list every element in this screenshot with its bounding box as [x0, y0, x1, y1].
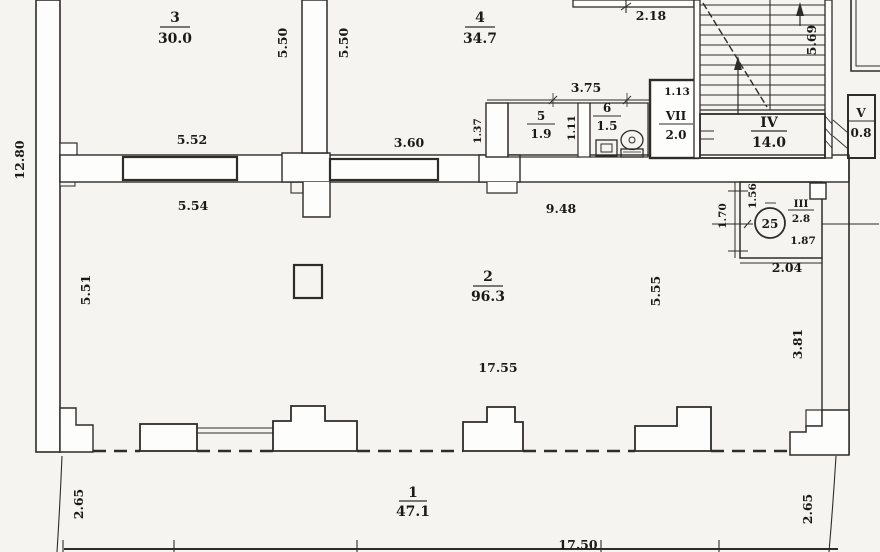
room-1-area: 47.1	[396, 504, 430, 520]
dim-1-11: 1.11	[566, 115, 578, 141]
dim-5-54: 5.54	[178, 198, 209, 213]
northeast-wall	[851, 0, 880, 71]
dim-5-50-b: 5.50	[336, 27, 351, 58]
door-jamb	[486, 103, 508, 157]
top-wall-segment	[573, 0, 694, 7]
pillar-1	[140, 424, 197, 451]
dim-1-13: 1.13	[664, 86, 690, 98]
room-3-area: 30.0	[158, 31, 192, 47]
floor-plan-canvas: 3 30.0 4 34.7 5 1.9 6 1.5 VII 2.0 IV 14.…	[0, 0, 880, 552]
dim-5-69: 5.69	[804, 25, 819, 55]
pillar-4	[635, 407, 711, 451]
room-2-area: 96.3	[471, 289, 505, 305]
dim-17-55: 17.55	[478, 360, 517, 375]
pier-below-junction-b	[487, 182, 517, 193]
room-iii-area: 2.8	[792, 213, 810, 225]
dim-5-55: 5.55	[648, 276, 663, 306]
room-2-number: 2	[483, 269, 493, 285]
tambour-pier	[810, 183, 826, 199]
pillar-3	[463, 407, 523, 451]
dim-17-50: 17.50	[558, 537, 597, 552]
south-colonnade	[57, 406, 838, 552]
room2-column	[294, 265, 322, 298]
dim-2-04: 2.04	[772, 260, 803, 275]
east-wall-notch	[806, 410, 822, 426]
dim-1-56: 1.56	[747, 183, 759, 209]
room-3-number: 3	[170, 10, 180, 26]
window-1	[123, 157, 237, 180]
dim-5-51: 5.51	[78, 275, 93, 305]
room-iii-number: III	[794, 198, 809, 210]
dim-5-50-a: 5.50	[275, 27, 290, 58]
window-2	[330, 159, 438, 180]
dim-3-60: 3.60	[394, 135, 425, 150]
northeast-wall-inner	[856, 0, 880, 66]
pier-below-junction-a	[303, 182, 330, 217]
toilet-bowl-icon	[621, 131, 643, 150]
stair-up-arrow-icon	[734, 56, 742, 70]
boundary-slant-right	[829, 456, 836, 552]
room-vii-number: VII	[665, 109, 687, 123]
room-vii-area: 2.0	[666, 128, 687, 142]
wall-room3-room4	[302, 0, 327, 153]
wall-junction-a	[282, 153, 330, 182]
wall-junction-b	[479, 155, 520, 182]
room-v-number: V	[855, 106, 866, 120]
stair-wall-left	[694, 0, 700, 158]
pier-notch	[291, 182, 303, 193]
facade-ticks	[63, 540, 719, 552]
dim-5-52: 5.52	[177, 132, 207, 147]
entrance-marker-number: 25	[762, 217, 779, 231]
toilet-drain-icon	[629, 137, 635, 143]
room-6-number: 6	[603, 101, 611, 115]
sink-basin-icon	[601, 144, 612, 152]
room-1-number: 1	[408, 485, 418, 501]
room-4-number: 4	[475, 10, 485, 26]
room-5-number: 5	[537, 109, 545, 123]
room-iv-area: 14.0	[752, 135, 786, 151]
dim-1-87: 1.87	[790, 235, 816, 247]
dim-9-48: 9.48	[546, 201, 577, 216]
dim-2-65-left: 2.65	[71, 489, 86, 519]
partition-5-6	[578, 103, 590, 157]
dim-12-80: 12.80	[12, 140, 27, 179]
dim-2-18: 2.18	[636, 8, 667, 23]
southwest-pillar	[60, 408, 93, 452]
room-v-area: 0.8	[851, 126, 872, 140]
dim-2-65-right: 2.65	[800, 494, 815, 524]
dim-1-37: 1.37	[472, 118, 484, 144]
sink-icon	[596, 140, 617, 156]
boundary-slant-left	[57, 456, 62, 552]
stair-up-arrow2-icon	[796, 2, 804, 16]
floor-plan-page: 3 30.0 4 34.7 5 1.9 6 1.5 VII 2.0 IV 14.…	[0, 0, 880, 552]
dim-1-70: 1.70	[717, 203, 729, 229]
walls	[36, 0, 880, 455]
west-wall	[36, 0, 60, 452]
room-6-area: 1.5	[597, 119, 618, 133]
dim-3-81: 3.81	[790, 329, 805, 359]
room-4-area: 34.7	[463, 31, 497, 47]
pillar-2	[273, 406, 357, 451]
room-5-area: 1.9	[531, 127, 552, 141]
dim-3-75: 3.75	[571, 80, 601, 95]
room-iv-number: IV	[760, 115, 779, 131]
